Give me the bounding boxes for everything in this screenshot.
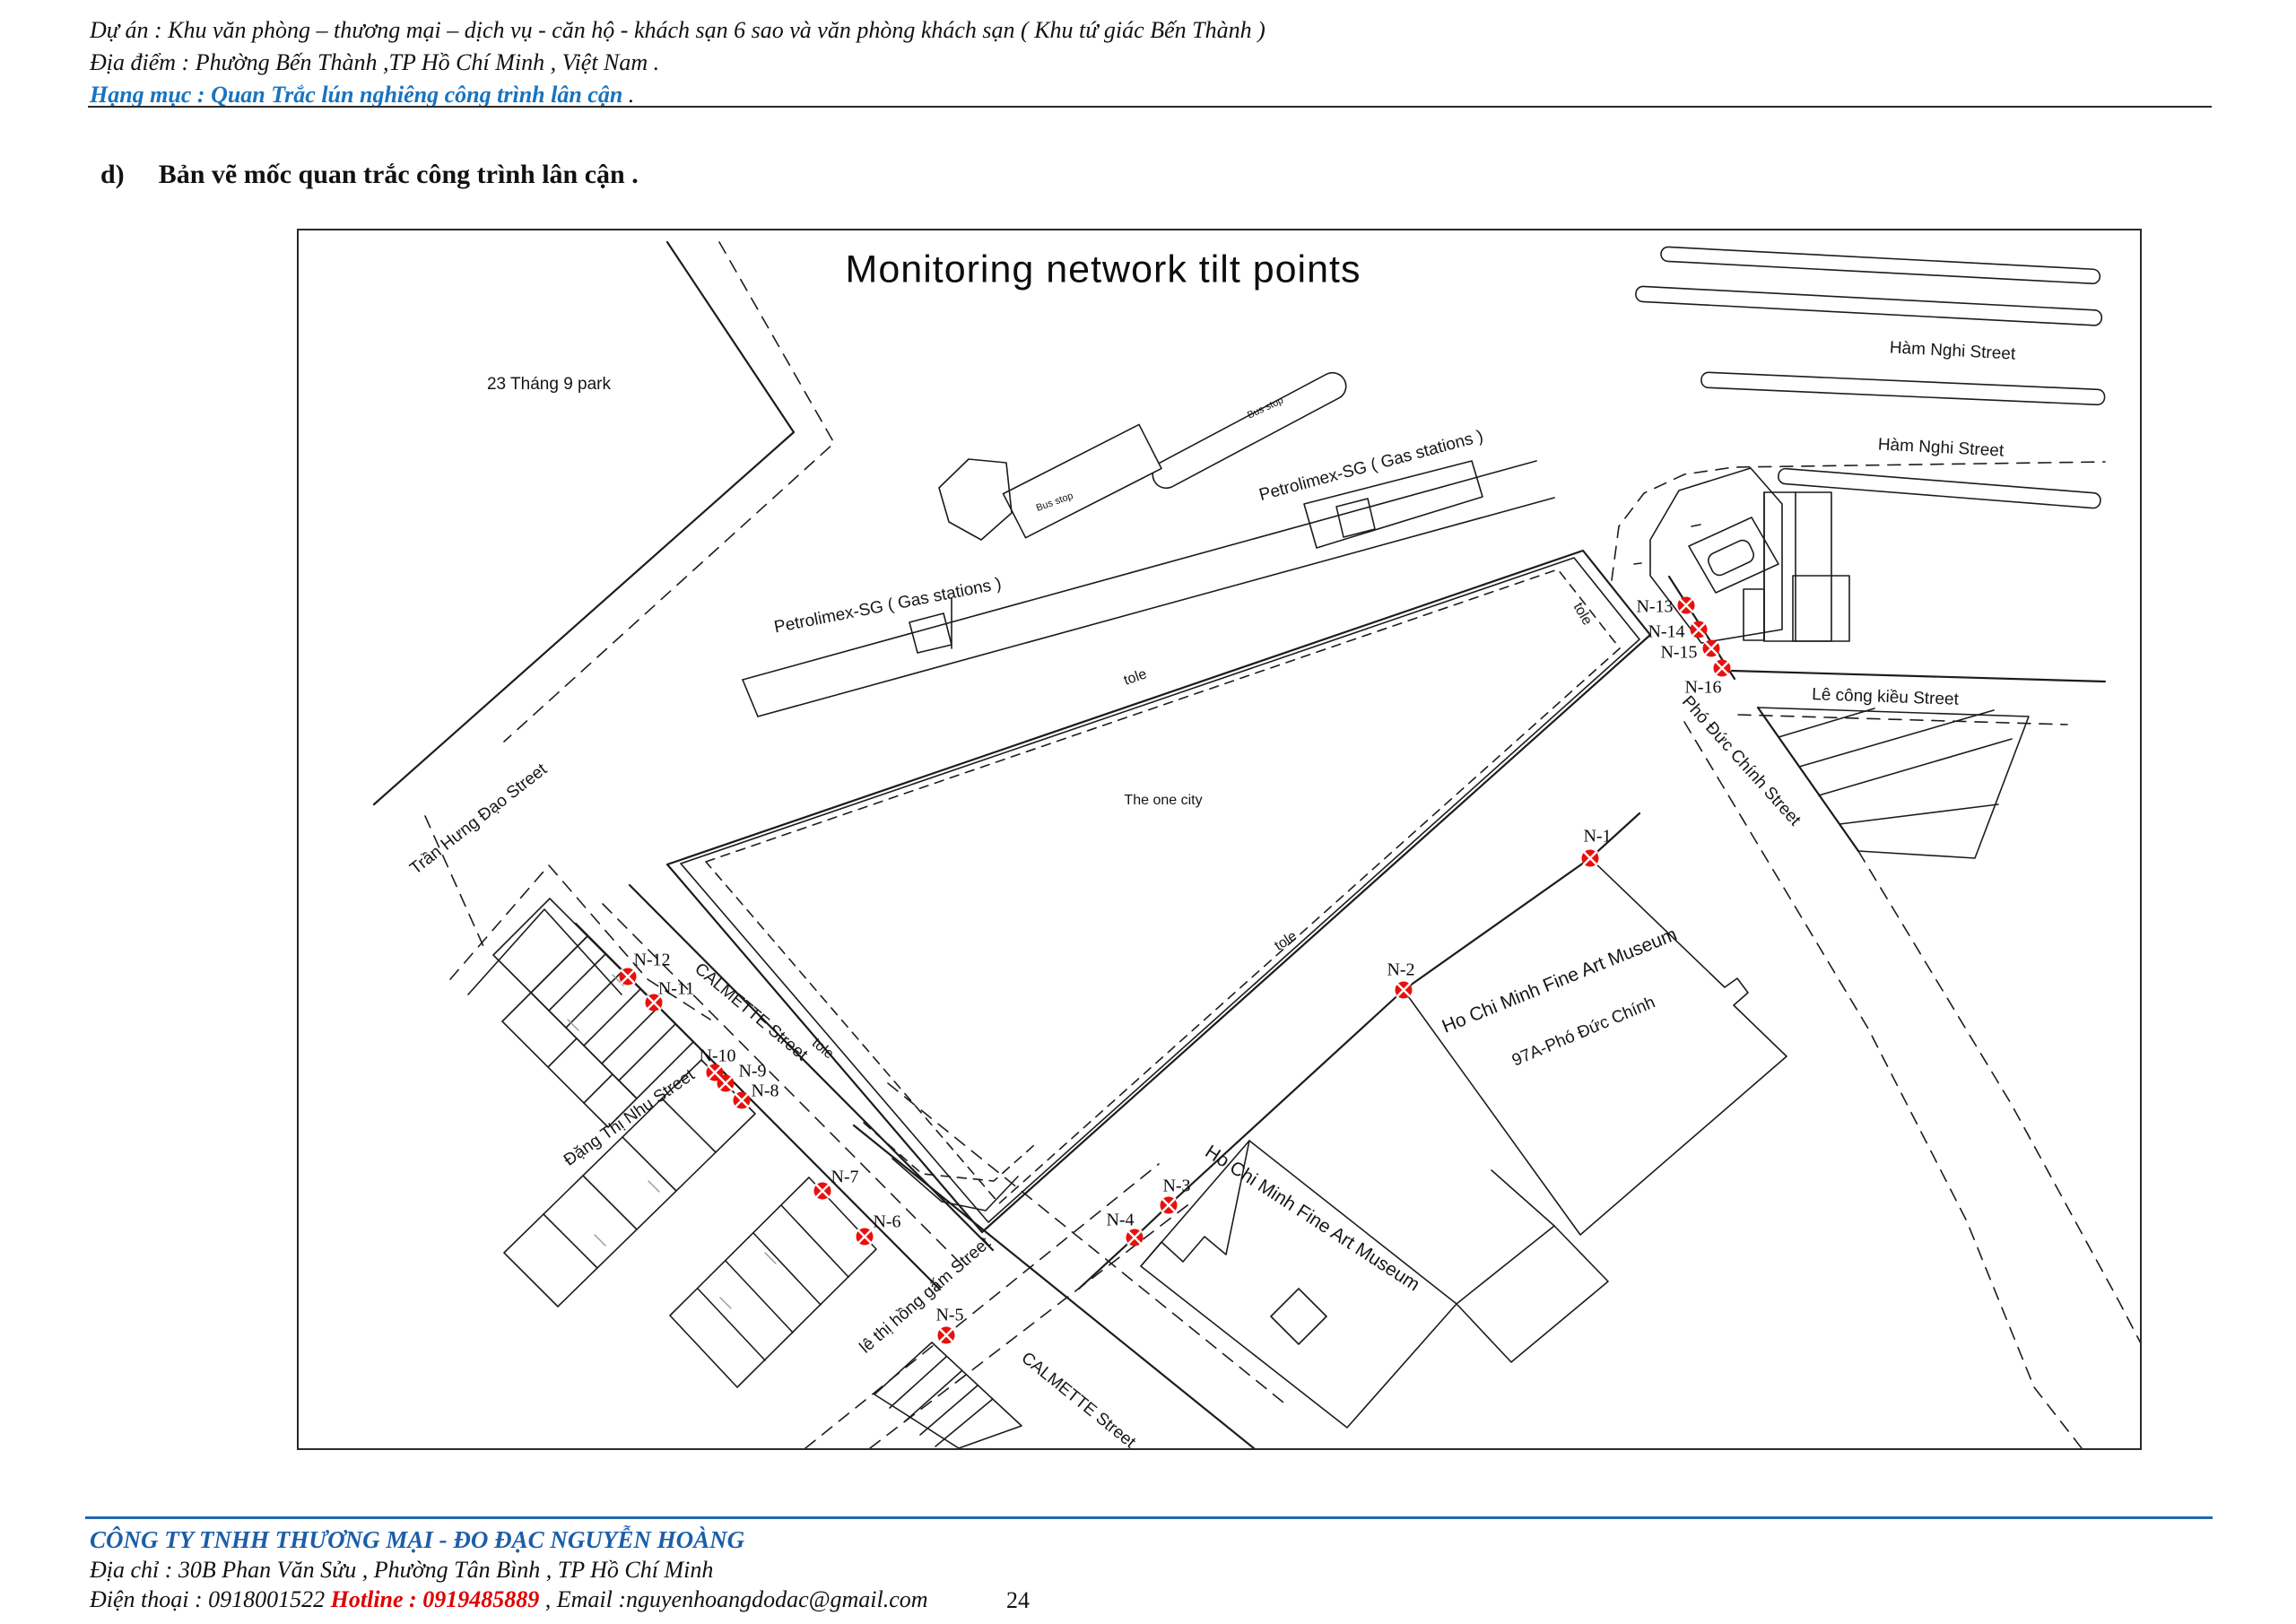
drawing-title: Monitoring network tilt points [846,248,1361,292]
tilt-point-label-n10: N-10 [699,1046,735,1067]
place-label-the-one-city: The one city [1124,793,1202,809]
survey-marker-icon [1393,979,1414,1001]
tilt-point-label-n13: N-13 [1636,597,1673,618]
survey-marker-icon [1711,657,1733,679]
tilt-point-label-n16: N-16 [1684,678,1721,699]
footer-address: Địa chỉ : 30B Phan Văn Sửu , Phường Tân … [90,1557,713,1584]
tilt-point-label-n14: N-14 [1648,622,1684,643]
tilt-point-label-n3: N-3 [1162,1177,1190,1197]
document-page: Dự án : Khu văn phòng – thương mại – dịc… [0,0,2296,1624]
survey-marker-icon [1675,595,1697,616]
survey-marker-icon [1158,1194,1179,1216]
tilt-point-marker-n13 [1675,595,1697,616]
site-plan-drawing [299,230,2140,1448]
section-heading: d)Bản vẽ mốc quan trắc công trình lân cậ… [100,160,639,190]
tilt-point-label-n6: N-6 [873,1212,900,1233]
page-number: 24 [1006,1587,1030,1614]
survey-marker-icon [935,1324,957,1346]
tilt-point-label-n2: N-2 [1387,960,1414,981]
footer-contact-line: Điện thoại : 0918001522 Hotline : 091948… [90,1586,928,1613]
footer-phone: Điện thoại : 0918001522 [90,1586,325,1612]
header-location-line: Địa điểm : Phường Bến Thành ,TP Hồ Chí M… [90,47,1265,79]
tilt-point-label-n5: N-5 [935,1306,963,1326]
tilt-point-marker-n15 [1700,638,1722,659]
tilt-point-label-n8: N-8 [751,1081,778,1102]
header-category-text: Hạng mục : Quan Trắc lún nghiêng công tr… [90,82,622,108]
tilt-point-marker-n7 [812,1180,833,1202]
tilt-point-marker-n5 [935,1324,957,1346]
survey-marker-icon [854,1226,875,1247]
tilt-point-marker-n1 [1579,847,1601,869]
header-divider [88,106,2212,108]
tilt-point-marker-n3 [1158,1194,1179,1216]
tilt-point-marker-n16 [1711,657,1733,679]
footer-divider [85,1516,2213,1519]
footer-email: , Email :nguyenhoangdodac@gmail.com [539,1586,927,1612]
survey-marker-icon [1579,847,1601,869]
footer-company: CÔNG TY TNHH THƯƠNG MẠI - ĐO ĐẠC NGUYỄN … [90,1526,744,1554]
section-index: d) [100,160,125,189]
tilt-point-label-n15: N-15 [1660,643,1697,664]
tilt-point-label-n9: N-9 [738,1062,766,1082]
tilt-point-marker-n6 [854,1226,875,1247]
section-title: Bản vẽ mốc quan trắc công trình lân cận … [159,160,639,189]
survey-marker-icon [812,1180,833,1202]
header-project-line: Dự án : Khu văn phòng – thương mại – dịc… [90,14,1265,47]
footer-hotline: Hotline : 0919485889 [325,1586,539,1612]
header-category-dot: . [622,82,634,108]
tilt-point-label-n1: N-1 [1583,827,1611,847]
place-label-park: 23 Tháng 9 park [487,375,611,395]
survey-marker-icon [1700,638,1722,659]
document-header: Dự án : Khu văn phòng – thương mại – dịc… [90,14,1265,111]
tilt-point-label-n7: N-7 [831,1168,858,1188]
tilt-point-marker-n2 [1393,979,1414,1001]
tilt-point-label-n12: N-12 [633,951,670,971]
tilt-point-label-n4: N-4 [1106,1211,1134,1231]
site-plan-frame: Monitoring network tilt points Hàm Nghi … [297,229,2142,1450]
tilt-point-label-n11: N-11 [658,979,694,1000]
